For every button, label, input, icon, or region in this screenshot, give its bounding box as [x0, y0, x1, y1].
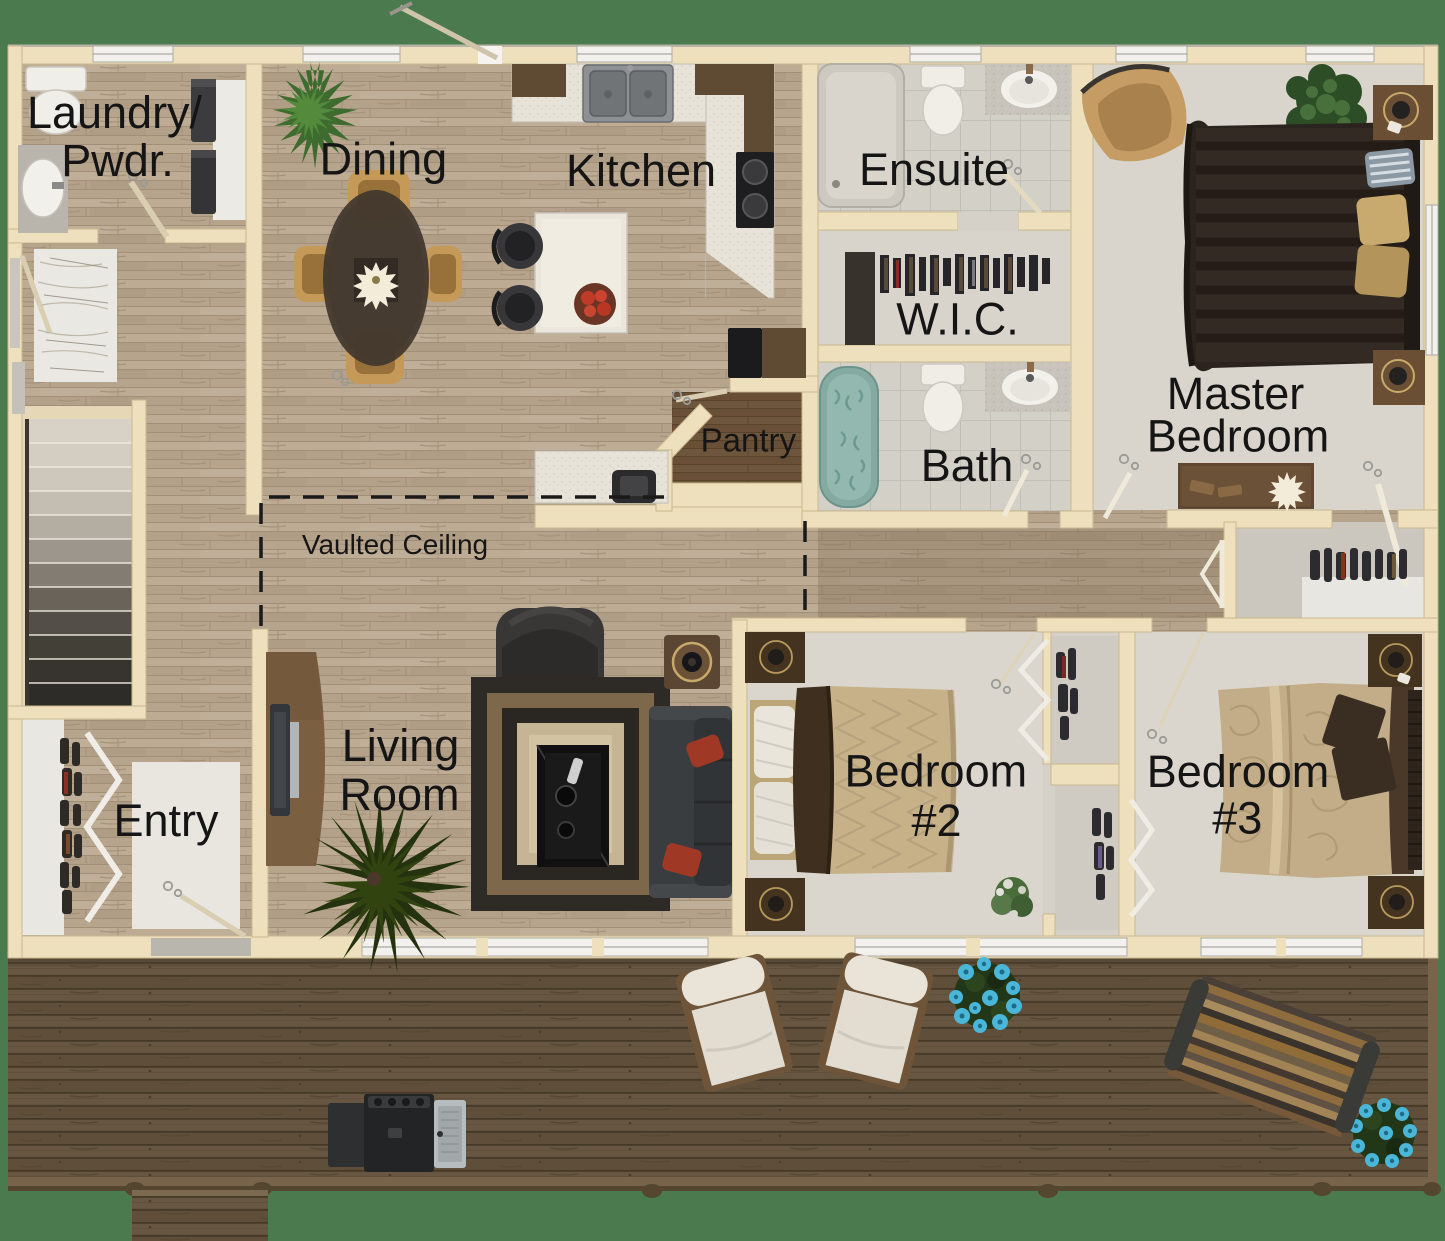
svg-text:Pantry: Pantry	[701, 422, 797, 459]
svg-text:Bedroom: Bedroom	[1147, 410, 1330, 461]
svg-text:Kitchen: Kitchen	[566, 145, 716, 196]
svg-text:#2: #2	[911, 795, 961, 846]
svg-text:Entry: Entry	[113, 795, 219, 846]
svg-text:Ensuite: Ensuite	[859, 144, 1009, 195]
svg-text:#3: #3	[1212, 793, 1262, 844]
svg-text:Living: Living	[342, 720, 460, 771]
svg-text:Bedroom: Bedroom	[845, 746, 1028, 797]
svg-text:Dining: Dining	[320, 134, 448, 185]
svg-text:Bedroom: Bedroom	[1147, 746, 1330, 797]
svg-text:Room: Room	[339, 769, 459, 820]
svg-text:Laundry/: Laundry/	[27, 87, 203, 138]
svg-text:Pwdr.: Pwdr.	[61, 135, 174, 186]
svg-text:Vaulted Ceiling: Vaulted Ceiling	[302, 529, 488, 560]
svg-text:Bath: Bath	[921, 440, 1014, 491]
svg-text:W.I.C.: W.I.C.	[896, 294, 1019, 345]
